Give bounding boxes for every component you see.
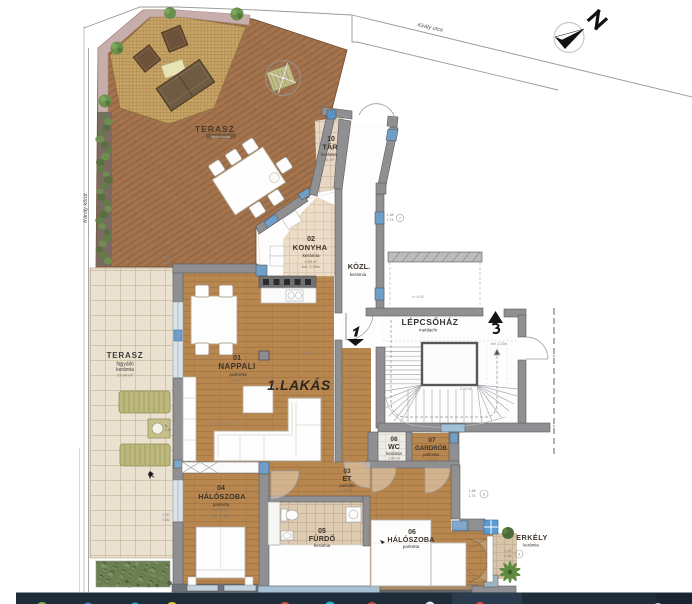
svg-text:04: 04 — [217, 485, 225, 492]
svg-text:1.LAKÁS: 1.LAKÁS — [267, 377, 331, 393]
svg-text:8: 8 — [483, 493, 485, 497]
svg-text:parketta: parketta — [339, 483, 355, 488]
svg-text:2,24 m²: 2,24 m² — [460, 387, 473, 391]
svg-text:parketta: parketta — [229, 372, 247, 378]
svg-text:13,31 m²: 13,31 m² — [214, 508, 230, 512]
svg-text:bel: 5,95m: bel: 5,95m — [216, 422, 233, 426]
svg-text:HÁLÓSZOBA: HÁLÓSZOBA — [387, 535, 434, 544]
svg-text:kerámia: kerámia — [350, 272, 367, 277]
svg-text:LÉPCSŐHÁZ: LÉPCSŐHÁZ — [402, 316, 459, 327]
svg-text:bm: 2,59m: bm: 2,59m — [302, 265, 320, 269]
svg-text:0,86: 0,86 — [163, 261, 170, 265]
svg-text:0,86: 0,86 — [163, 518, 170, 522]
svg-text:1,40: 1,40 — [505, 554, 512, 558]
svg-text:1,38: 1,38 — [469, 489, 476, 493]
svg-text:HÁLÓSZOBA: HÁLÓSZOBA — [198, 492, 245, 501]
svg-text:NAPPALI: NAPPALI — [218, 362, 255, 371]
svg-text:GARDRÓB: GARDRÓB — [415, 444, 447, 452]
svg-text:29,38 m²: 29,38 m² — [231, 379, 247, 383]
svg-text:1,74: 1,74 — [387, 218, 394, 222]
svg-text:TERASZ: TERASZ — [195, 124, 235, 134]
svg-text:2,50: 2,50 — [163, 513, 170, 517]
svg-text:Károly körút: Károly körút — [83, 193, 89, 223]
svg-text:ET: ET — [343, 476, 353, 483]
svg-text:FÜRDŐ: FÜRDŐ — [309, 534, 336, 543]
svg-text:1,73 m²: 1,73 m² — [425, 458, 437, 462]
svg-text:parketta: parketta — [403, 544, 420, 549]
svg-text:1,08 m²: 1,08 m² — [388, 457, 400, 461]
svg-text:1,74: 1,74 — [469, 494, 476, 498]
svg-text:08: 08 — [390, 436, 398, 443]
svg-text:TÁR: TÁR — [322, 143, 338, 152]
svg-text:01: 01 — [233, 353, 241, 362]
svg-text:bel: 3,03m: bel: 3,03m — [212, 514, 230, 518]
svg-text:ERKÉLY: ERKÉLY — [516, 533, 548, 542]
svg-text:kerámia: kerámia — [386, 451, 402, 456]
svg-text:9: 9 — [518, 553, 520, 557]
svg-text:KONYHA: KONYHA — [293, 243, 328, 252]
svg-text:WC: WC — [388, 444, 400, 451]
svg-text:kerámia: kerámia — [314, 543, 331, 548]
svg-text:bel: 2,23m: bel: 2,23m — [491, 342, 508, 346]
svg-text:+0,05: +0,05 — [301, 351, 310, 355]
svg-text:07: 07 — [428, 437, 436, 444]
svg-text:1,31 m²: 1,31 m² — [322, 158, 335, 162]
svg-text:1,10: 1,10 — [165, 428, 171, 432]
svg-text:KÖZL.: KÖZL. — [348, 262, 371, 271]
svg-text:4,95 m²: 4,95 m² — [305, 260, 319, 264]
svg-text:TERASZ: TERASZ — [107, 351, 144, 360]
svg-text:kerámia: kerámia — [321, 152, 337, 157]
svg-text:24,04 m²: 24,04 m² — [117, 373, 133, 378]
svg-text:parketta: parketta — [213, 502, 230, 507]
svg-text:lapburkolat: lapburkolat — [211, 134, 231, 139]
svg-text:1,38: 1,38 — [387, 213, 394, 217]
svg-text:kerámia: kerámia — [523, 543, 539, 548]
svg-text:2,39 m²: 2,39 m² — [341, 489, 353, 493]
svg-text:kerámia: kerámia — [302, 253, 319, 259]
svg-text:szl: 2,24: szl: 2,24 — [355, 374, 359, 387]
svg-text:1,40: 1,40 — [505, 549, 512, 553]
svg-text:mettlachi: mettlachi — [419, 328, 437, 333]
svg-text:7: 7 — [399, 217, 401, 221]
svg-text:parketta: parketta — [423, 452, 439, 457]
svg-text:02: 02 — [307, 236, 315, 243]
svg-text:2,70: 2,70 — [163, 256, 170, 260]
svg-text:b: 4,05: b: 4,05 — [413, 295, 424, 299]
svg-text:03: 03 — [343, 468, 351, 475]
